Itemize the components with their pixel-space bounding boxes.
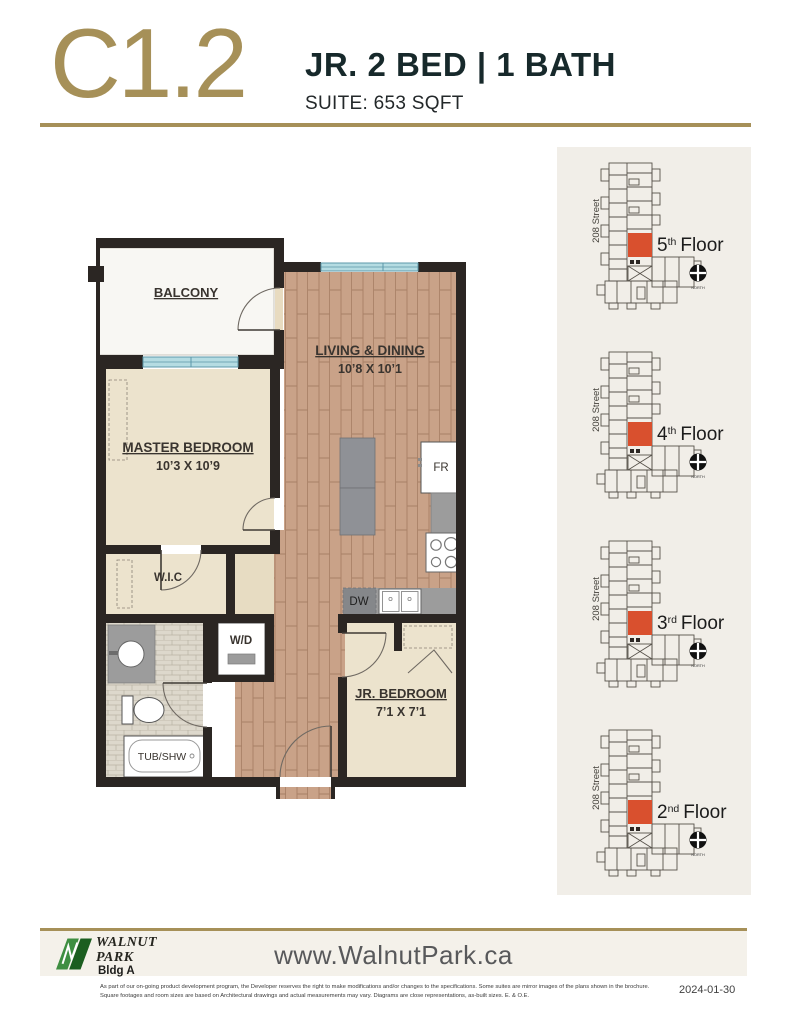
key-plan-5th-floor: 208 Street 5thFloor NORTH [557, 149, 751, 331]
wd-label: W/D [230, 635, 252, 647]
balcony-floor [99, 248, 274, 355]
wic-floor [106, 554, 226, 614]
document-date: 2024-01-30 [679, 984, 735, 996]
floor-label: 2ndFloor [657, 802, 727, 823]
entry-nib-floor [280, 787, 331, 799]
window-living [321, 263, 418, 271]
building-label: Bldg A [98, 965, 135, 977]
disclaimer-line-1: As part of our on-going product developm… [100, 983, 652, 992]
living-label: LIVING & DINING [315, 343, 425, 358]
fr-label: FR [433, 462, 448, 474]
master-dims: 10’3 X 10’9 [156, 459, 220, 473]
dw-label: DW [349, 596, 368, 608]
highlighted-unit [628, 800, 652, 824]
north-compass-icon [690, 832, 707, 849]
north-compass-icon [690, 454, 707, 471]
washer-dryer [218, 623, 265, 675]
key-plan-3rd-floor: 208 Street 3rdFloor NORTH [557, 527, 751, 709]
master-floor [106, 369, 274, 545]
living-dims: 10’8 X 10’1 [338, 362, 402, 376]
logo-text-walnut: WALNUT [96, 935, 157, 951]
floor-plan: BALCONY LIVING & DINING 10’8 X 10’1 MAST… [88, 230, 490, 810]
tub-label: TUB/SHW [138, 751, 187, 763]
walnut-park-logo-icon [56, 934, 92, 974]
north-label: NORTH [691, 853, 705, 857]
highlighted-unit [628, 611, 652, 635]
kitchen-sink [379, 589, 421, 614]
wic-label: W.I.C [154, 572, 182, 584]
balcony-door-threshold [275, 288, 283, 330]
north-label: NORTH [691, 286, 705, 290]
header-divider [40, 123, 751, 127]
floor-label: 4thFloor [657, 424, 724, 445]
floor-label: 5thFloor [657, 235, 724, 256]
north-compass-icon [690, 265, 707, 282]
logo-text-park: PARK [96, 950, 134, 966]
highlighted-unit [628, 233, 652, 257]
street-label: 208 Street [591, 577, 602, 621]
walnut-park-logo: WALNUT PARK Bldg A [56, 934, 206, 976]
plan-code-title: C1.2 [50, 14, 245, 112]
kitchen-island [340, 438, 375, 535]
bathroom-vanity [108, 625, 155, 683]
suite-area-label: SUITE: 653 SQFT [305, 93, 464, 115]
highlighted-unit [628, 422, 652, 446]
street-label: 208 Street [591, 766, 602, 810]
window-master [143, 357, 238, 367]
jr-label: JR. BEDROOM [355, 686, 447, 701]
master-label: MASTER BEDROOM [122, 440, 253, 455]
street-label: 208 Street [591, 199, 602, 243]
balcony-label: BALCONY [154, 285, 219, 300]
jr-dims: 7’1 X 7’1 [376, 705, 426, 719]
floor-label: 3rdFloor [657, 613, 725, 634]
north-compass-icon [690, 643, 707, 660]
street-label: 208 Street [591, 388, 602, 432]
north-label: NORTH [691, 475, 705, 479]
disclaimer-text: As part of our on-going product developm… [100, 983, 652, 1002]
key-plan-2nd-floor: 208 Street 2ndFloor NORTH [557, 716, 751, 898]
key-plan-panel: 208 Street 5thFloor NORTH 208 Street 4th… [557, 147, 751, 895]
key-plan-4th-floor: 208 Street 4thFloor NORTH [557, 338, 751, 520]
toilet [122, 696, 164, 724]
plan-type-title: JR. 2 BED | 1 BATH [305, 46, 616, 84]
north-label: NORTH [691, 664, 705, 668]
disclaimer-line-2: Square footages and room sizes are based… [100, 992, 652, 1001]
